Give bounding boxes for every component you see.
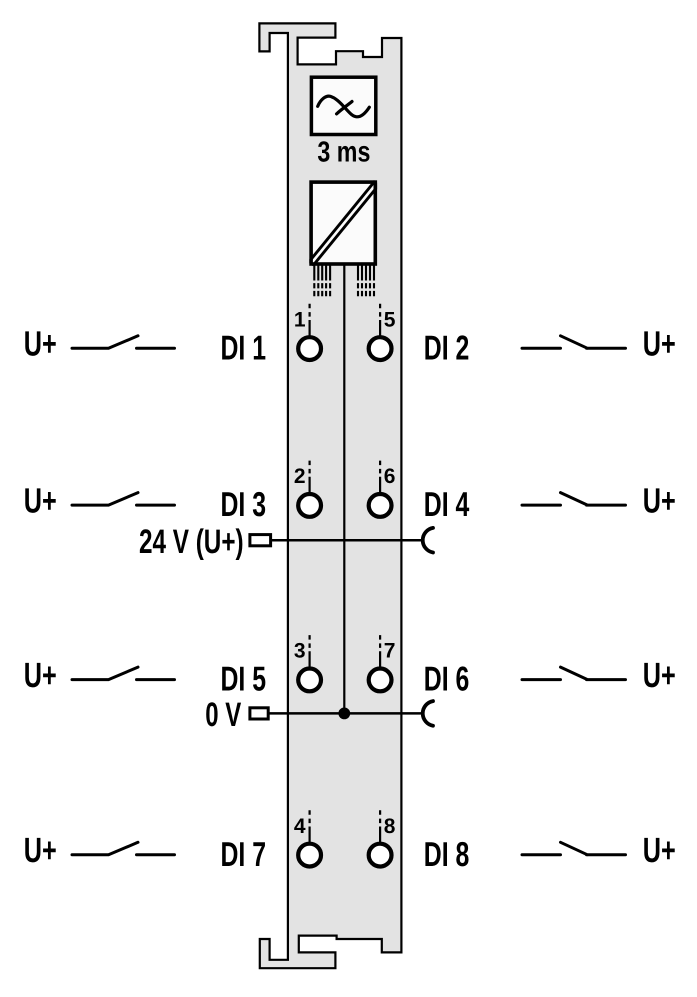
svg-text:2: 2	[294, 465, 306, 488]
svg-text:DI 1: DI 1	[221, 329, 267, 367]
svg-text:U+: U+	[643, 481, 676, 520]
svg-text:U+: U+	[643, 656, 676, 695]
svg-text:DI 8: DI 8	[424, 836, 470, 874]
svg-text:U+: U+	[24, 481, 57, 520]
svg-text:DI 6: DI 6	[424, 661, 470, 699]
svg-text:U+: U+	[24, 831, 57, 870]
svg-text:3 ms: 3 ms	[317, 136, 370, 168]
svg-text:U+: U+	[643, 325, 676, 364]
svg-text:DI 7: DI 7	[221, 836, 267, 874]
svg-text:DI 5: DI 5	[221, 661, 267, 699]
svg-text:DI 4: DI 4	[424, 486, 470, 524]
svg-text:DI 2: DI 2	[424, 329, 470, 367]
svg-text:DI 3: DI 3	[221, 486, 267, 524]
svg-text:U+: U+	[24, 325, 57, 364]
svg-text:U+: U+	[24, 656, 57, 695]
svg-text:1: 1	[294, 308, 306, 331]
svg-text:8: 8	[384, 815, 396, 838]
svg-text:0 V: 0 V	[205, 696, 241, 734]
svg-text:6: 6	[384, 465, 396, 488]
svg-text:7: 7	[384, 640, 396, 663]
svg-text:U+: U+	[643, 831, 676, 870]
svg-text:4: 4	[294, 815, 306, 838]
svg-text:3: 3	[294, 640, 306, 663]
svg-text:24 V (U+): 24 V (U+)	[139, 523, 244, 561]
svg-text:5: 5	[384, 308, 396, 331]
